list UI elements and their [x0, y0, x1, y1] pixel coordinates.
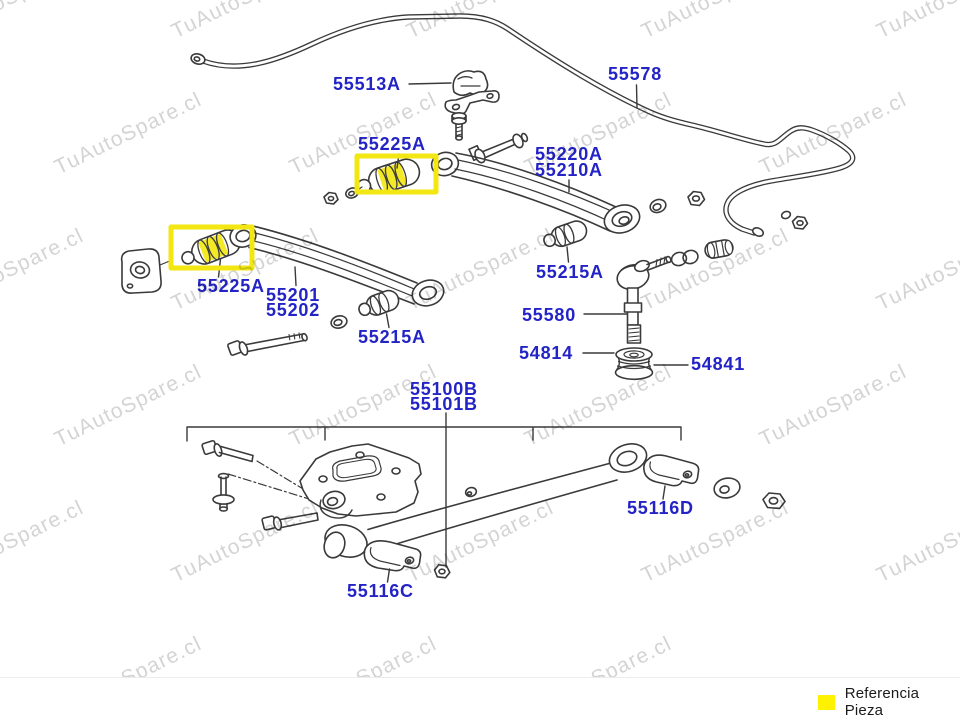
spool-bushing-drawing	[616, 348, 653, 379]
bushing-55225a-top-drawing	[324, 156, 423, 204]
bottom-separator-line	[0, 677, 960, 678]
upper-arm-bolt-drawing	[469, 133, 529, 165]
upper-arm-drawing	[429, 149, 643, 237]
bushing-55215a-right-drawing	[541, 218, 589, 251]
parts-diagram-svg	[0, 0, 960, 720]
lower-arm-assembly-drawing	[187, 427, 785, 578]
stabilizer-bar-drawing	[190, 16, 853, 238]
legend-highlight-swatch	[818, 695, 835, 710]
stabilizer-link-drawing	[614, 239, 734, 343]
parts-diagram-page: 55513A 55578 55225A 55220A 55210A 55215A…	[0, 0, 960, 720]
legend: Referencia Pieza	[818, 692, 960, 712]
stabilizer-clamp-drawing	[445, 71, 499, 140]
legend-label: Referencia Pieza	[845, 685, 960, 719]
